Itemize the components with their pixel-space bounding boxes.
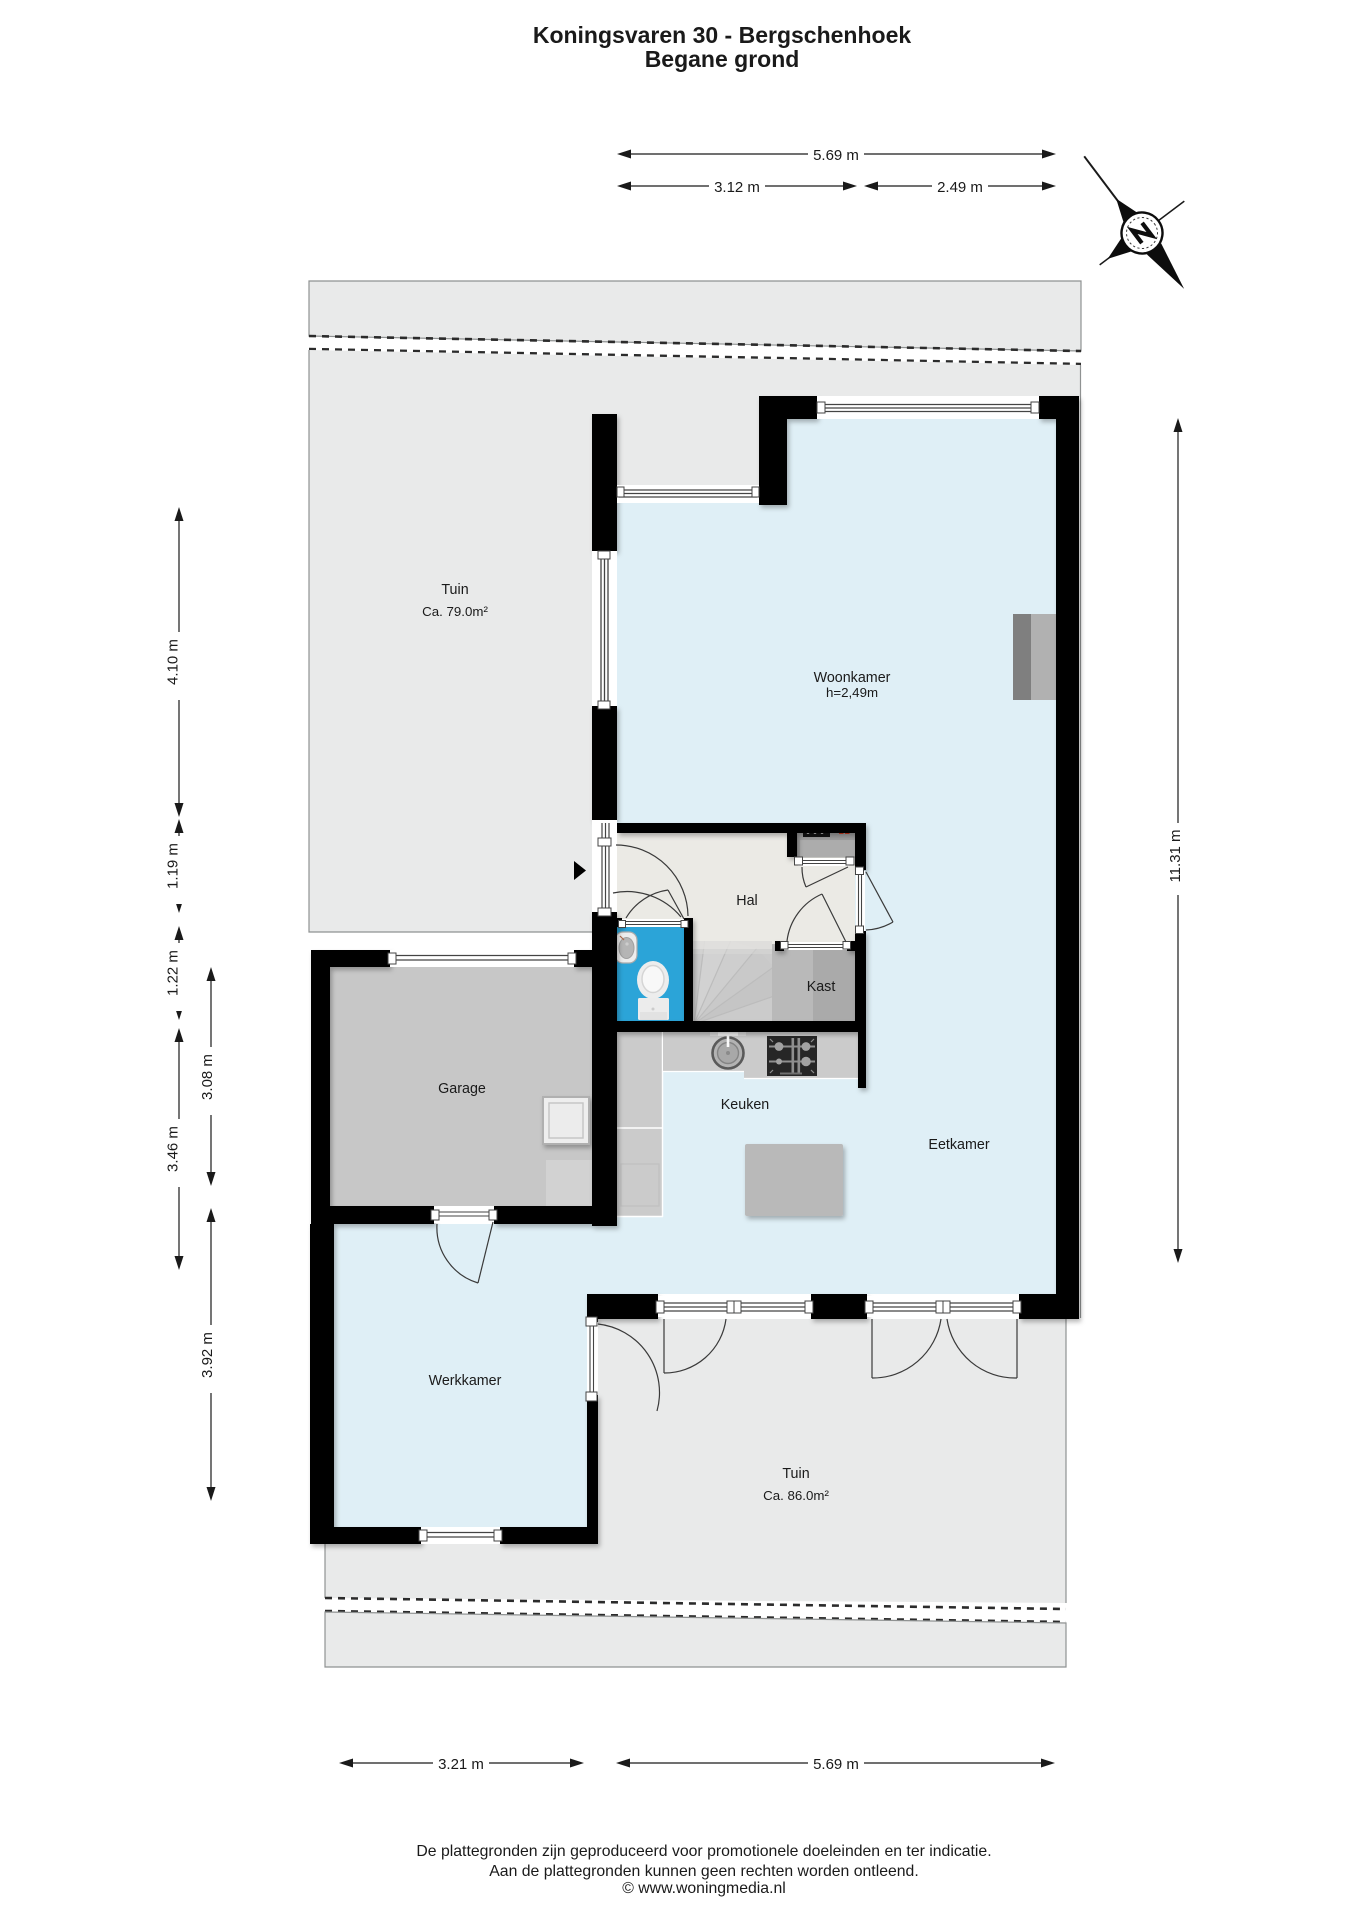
svg-text:Ca. 86.0m²: Ca. 86.0m² xyxy=(763,1488,829,1503)
svg-text:Tuin: Tuin xyxy=(782,1466,809,1482)
svg-text:Aan de plattegronden kunnen ge: Aan de plattegronden kunnen geen rechten… xyxy=(489,1863,919,1880)
svg-text:h=2,49m: h=2,49m xyxy=(826,685,878,700)
svg-text:11.31 m: 11.31 m xyxy=(1167,829,1184,882)
svg-text:Woonkamer: Woonkamer xyxy=(814,670,891,686)
svg-text:Eetkamer: Eetkamer xyxy=(928,1137,989,1153)
svg-text:Keuken: Keuken xyxy=(721,1097,770,1113)
svg-text:3.12 m: 3.12 m xyxy=(714,179,760,196)
svg-text:Tuin: Tuin xyxy=(441,582,468,598)
svg-text:Begane grond: Begane grond xyxy=(645,46,800,72)
svg-text:5.69 m: 5.69 m xyxy=(813,1756,859,1773)
svg-text:Koningsvaren 30 - Bergschenhoe: Koningsvaren 30 - Bergschenhoek xyxy=(533,22,912,48)
svg-text:Werkkamer: Werkkamer xyxy=(429,1373,502,1389)
svg-text:1.19 m: 1.19 m xyxy=(165,843,182,889)
svg-text:Hal: Hal xyxy=(736,893,757,909)
svg-text:Kast: Kast xyxy=(807,979,836,995)
svg-text:© www.woningmedia.nl: © www.woningmedia.nl xyxy=(622,1880,786,1897)
svg-text:5.69 m: 5.69 m xyxy=(813,147,859,164)
svg-text:1.22 m: 1.22 m xyxy=(165,950,182,996)
svg-text:4.10 m: 4.10 m xyxy=(165,639,182,685)
svg-text:3.46 m: 3.46 m xyxy=(165,1126,182,1172)
svg-text:2.49 m: 2.49 m xyxy=(937,179,983,196)
svg-text:Ca. 79.0m²: Ca. 79.0m² xyxy=(422,604,488,619)
svg-text:3.08 m: 3.08 m xyxy=(199,1054,216,1100)
svg-text:3.92 m: 3.92 m xyxy=(199,1332,216,1378)
svg-text:Garage: Garage xyxy=(438,1081,486,1097)
svg-text:De plattegronden zijn geproduc: De plattegronden zijn geproduceerd voor … xyxy=(416,1843,991,1860)
svg-text:3.21 m: 3.21 m xyxy=(438,1756,484,1773)
